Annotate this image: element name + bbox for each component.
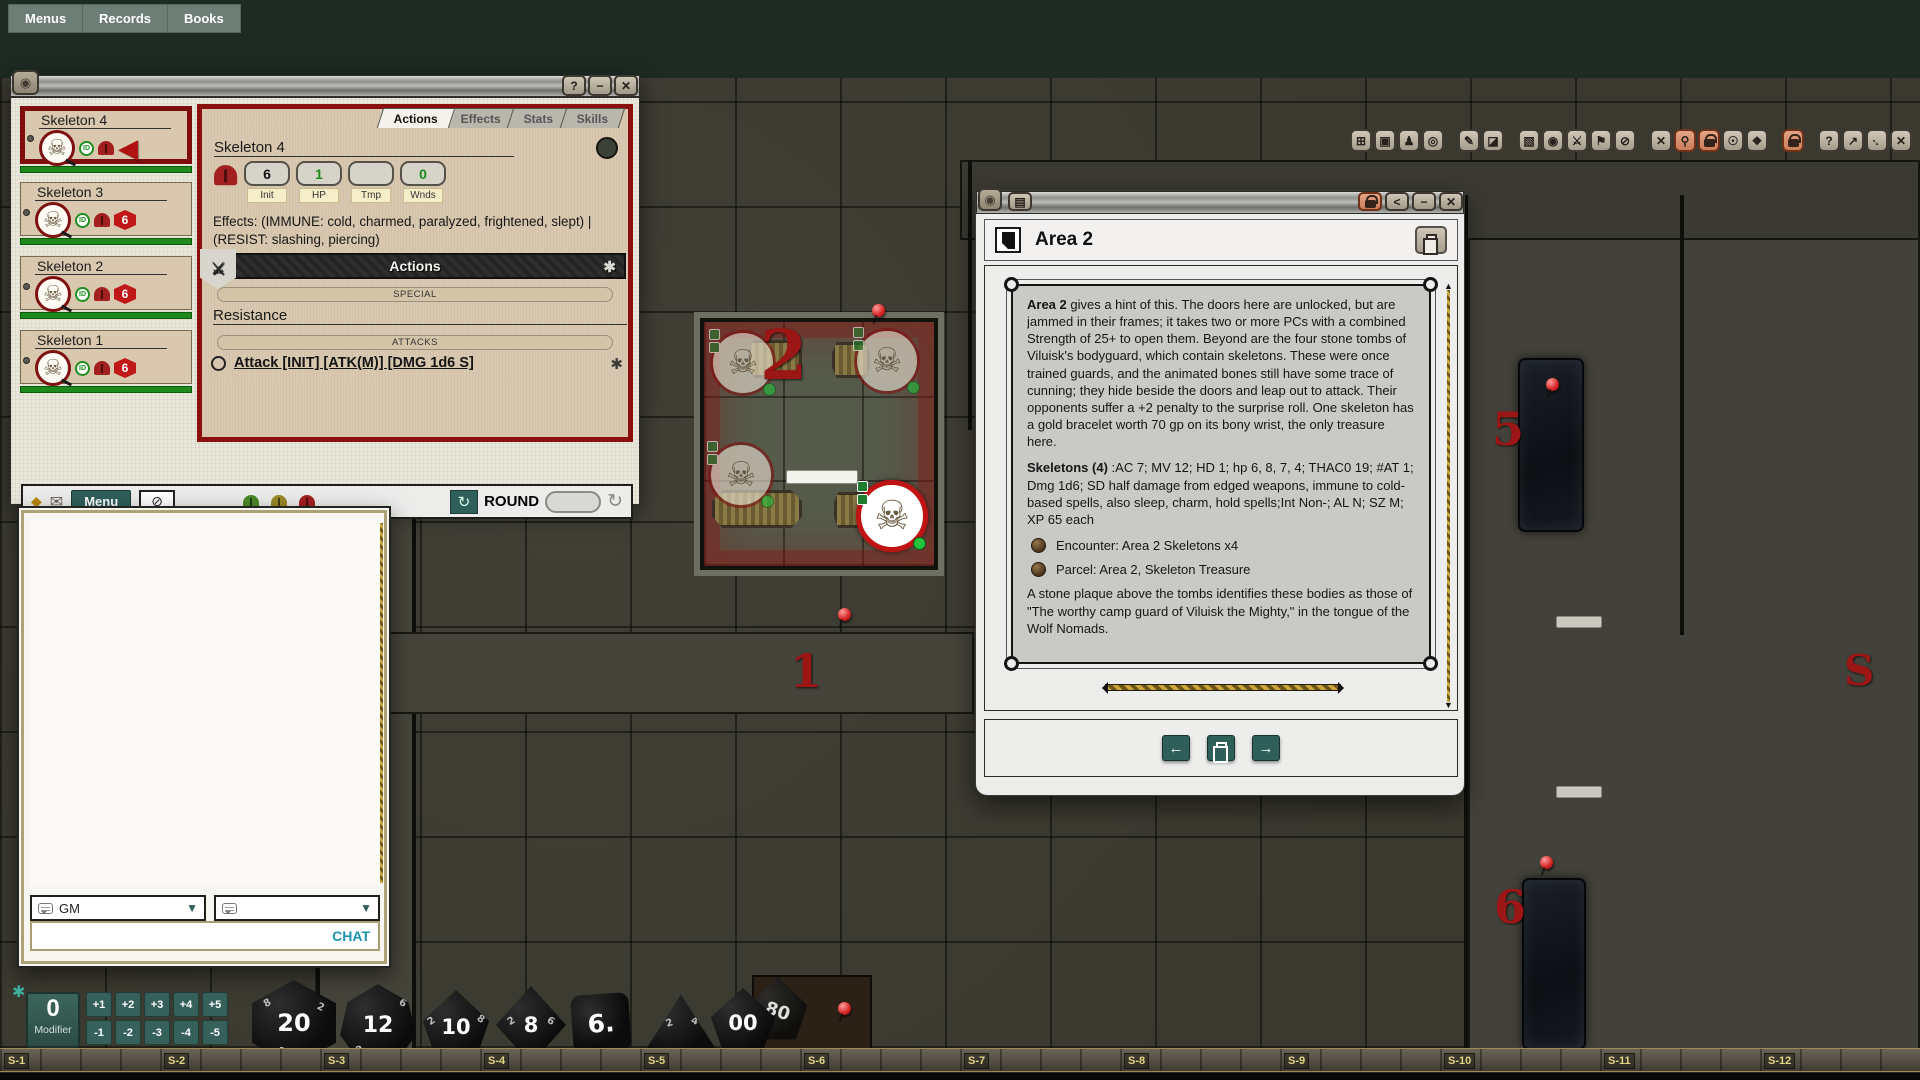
map-number-2: 2 [760, 322, 807, 390]
mod-minus3[interactable]: -3 [144, 1020, 170, 1045]
health-bar [20, 166, 192, 173]
story-header: Area 2 [984, 219, 1458, 261]
tmp-label: Tmp [351, 188, 391, 203]
lock-icon [1788, 139, 1799, 147]
round-input[interactable] [545, 491, 601, 513]
modifier-buttons: +1 +2 +3 +4 +5 -1 -2 -3 -4 -5 [86, 992, 228, 1045]
select-region-icon[interactable]: ▧ [1518, 129, 1540, 152]
token-status-badges [707, 441, 718, 465]
combatant-name[interactable]: Skeleton 4 [39, 112, 171, 129]
pages-icon [1426, 234, 1437, 247]
id-badge: ID [75, 213, 90, 228]
door[interactable] [786, 470, 858, 484]
combatant-row[interactable]: Skeleton 3 ☠ ID 6 [20, 182, 192, 245]
combatant-row[interactable]: Skeleton 1 ☠ ID 6 [20, 330, 192, 393]
ruler-label: S-8 [1124, 1053, 1149, 1069]
menu-button-menus[interactable]: Menus [8, 4, 83, 33]
story-title: Area 2 [1035, 229, 1093, 251]
map-number-6: 6 [1494, 884, 1526, 930]
init-badge: 6 [114, 210, 136, 230]
tab-actions[interactable]: Actions [377, 108, 456, 128]
tmp-value[interactable] [348, 161, 394, 186]
chat-log[interactable] [30, 519, 380, 885]
chat-input[interactable]: CHAT [30, 921, 380, 951]
init-badge: 6 [114, 358, 136, 378]
chat-send-label: CHAT [332, 928, 370, 944]
help-button[interactable]: ? [562, 75, 586, 96]
speech-bubble-icon [38, 903, 53, 914]
token-status-badges [709, 329, 720, 353]
init-value[interactable]: 6 [244, 161, 290, 186]
modifier-box[interactable]: 0 Modifier [26, 992, 80, 1048]
helmet-icon [94, 287, 110, 301]
health-bar [20, 238, 192, 245]
close-map-icon[interactable]: ✕ [1890, 129, 1912, 152]
combatant-token[interactable]: ☠ [39, 130, 75, 166]
mod-minus1[interactable]: -1 [86, 1020, 112, 1045]
help-icon[interactable]: ? [1818, 129, 1840, 152]
close-button[interactable]: ✕ [614, 75, 638, 96]
chevron-down-icon: ▼ [186, 901, 198, 915]
lock-tokens-icon[interactable] [1698, 129, 1720, 152]
bullseye-icon[interactable]: ◉ [1542, 129, 1564, 152]
story-horizontal-scrollbar[interactable] [1105, 684, 1341, 691]
helmet-icon [98, 141, 114, 155]
map-room-2: ☠ ☠ ☠ ☠ [700, 318, 938, 570]
map-pin[interactable] [838, 1002, 851, 1015]
skeleton-token-4-active[interactable]: ☠ [856, 480, 928, 552]
helmet-icon [214, 165, 237, 185]
door[interactable] [1556, 616, 1602, 628]
menu-button-books[interactable]: Books [167, 4, 241, 33]
token-health-dot [761, 495, 774, 508]
ruler-label: S-2 [164, 1053, 189, 1069]
chevron-down-icon: ▼ [360, 901, 372, 915]
mod-minus4[interactable]: -4 [173, 1020, 199, 1045]
modifier-label: Modifier [28, 1024, 78, 1036]
ruler-label: S-10 [1444, 1053, 1475, 1069]
chat-scrollbar[interactable] [380, 523, 383, 883]
combatant-row[interactable]: Skeleton 2 ☠ ID 6 [20, 256, 192, 319]
block-icon[interactable]: ⊘ [1614, 129, 1636, 152]
ruler-label: S-1 [4, 1053, 29, 1069]
round-label: ROUND [484, 493, 539, 510]
ruler-label: S-7 [964, 1053, 989, 1069]
attack-row[interactable]: Attack [INIT] [ATK(M)] [DMG 1d6 S] ✱ [211, 355, 625, 371]
close-icon[interactable]: ✕ [1439, 192, 1463, 211]
faction-dot[interactable] [23, 357, 30, 364]
next-round-button[interactable]: ↻ [450, 490, 478, 514]
skeleton-icon: ☠ [874, 496, 910, 536]
pin-icon[interactable]: ⚲ [1674, 129, 1696, 152]
map-toolbar: ⊞ ▣ ♟ ◎ ✎ ◪ ▧ ◉ ⚔ ⚑ ⊘ ✕ ⚲ ☉ ❖ ? ↗ ↔ ✕ [1350, 129, 1914, 152]
gear-icon[interactable]: ✱ [603, 258, 616, 276]
init-label: Init [247, 188, 287, 203]
bottom-strip [0, 1073, 1920, 1080]
pencil-icon[interactable]: ✎ [1458, 129, 1480, 152]
token-vision-icon[interactable]: ☉ [1722, 129, 1744, 152]
refresh-icon[interactable]: ↻ [607, 490, 623, 513]
record-token-icon [1031, 538, 1046, 553]
attack-link[interactable]: Attack [INIT] [ATK(M)] [DMG 1d6 S] [234, 355, 474, 371]
gear-icon[interactable]: ✱ [610, 355, 623, 373]
helmet-icon [94, 361, 110, 375]
story-window-area-2: ◉ ▤ < − ✕ Area 2 Area 2 gives a hint of … [975, 190, 1465, 796]
stat-boxes: 6Init 1HP Tmp 0Wnds [244, 161, 446, 203]
modifier-value: 0 [28, 994, 78, 1024]
minimize-icon[interactable]: − [1412, 192, 1436, 211]
copy-button[interactable] [1415, 226, 1447, 254]
move-icon[interactable]: ❖ [1746, 129, 1768, 152]
ruler-label: S-4 [484, 1053, 509, 1069]
token-health-dot [907, 381, 920, 394]
health-bar [20, 386, 192, 393]
detail-tabs: Actions Effects Stats Skills [385, 108, 622, 128]
pages-icon [1216, 742, 1227, 755]
flag-icon[interactable]: ⚑ [1590, 129, 1612, 152]
story-text[interactable]: Area 2 gives a hint of this. The doors h… [1027, 296, 1415, 652]
dragon-menu-icon[interactable]: ◉ [978, 188, 1002, 211]
ruler-label: S-12 [1764, 1053, 1795, 1069]
skeleton-token-2[interactable]: ☠ [854, 328, 920, 394]
combatant-token[interactable]: ☠ [35, 276, 71, 312]
ruler-label: S-6 [804, 1053, 829, 1069]
wnds-label: Wnds [403, 188, 443, 203]
mod-plus4[interactable]: +4 [173, 992, 199, 1017]
pages-button[interactable] [1207, 735, 1235, 761]
speech-bubble-icon [222, 903, 237, 914]
combatant-name[interactable]: Skeleton 2 [35, 258, 167, 275]
lock-window-icon[interactable] [1358, 192, 1382, 211]
combatant-name[interactable]: Skeleton 1 [35, 332, 167, 349]
mod-plus3[interactable]: +3 [144, 992, 170, 1017]
map-corridor [318, 632, 974, 714]
minimize-button[interactable]: − [588, 75, 612, 96]
stone-slab-6[interactable] [1522, 878, 1586, 1050]
paragraph: Area 2 gives a hint of this. The doors h… [1027, 296, 1415, 450]
story-nav-bar: ← → [984, 719, 1458, 777]
chat-mode-dropdown[interactable]: ▼ [214, 895, 380, 921]
combatant-list: Skeleton 4 ☠ ID ◀ Skeleton 3 [20, 106, 192, 464]
hp-label: HP [299, 188, 339, 203]
story-book-icon [995, 227, 1021, 253]
person-icon[interactable]: ♟ [1398, 129, 1420, 152]
token-delete-icon[interactable]: ✕ [1650, 129, 1672, 152]
map-scale-ruler: S-1 S-2 S-3 S-4 S-5 S-6 S-7 S-8 S-9 S-10… [0, 1048, 1920, 1072]
chat-identity-value: GM [59, 901, 180, 916]
mod-minus5[interactable]: -5 [202, 1020, 228, 1045]
effects-text: Effects: (IMMUNE: cold, charmed, paralyz… [213, 213, 625, 248]
fit-screen-icon[interactable]: ⊞ [1350, 129, 1372, 152]
paragraph: A stone plaque above the tombs identifie… [1027, 585, 1415, 636]
detail-name[interactable]: Skeleton 4 [214, 139, 514, 157]
combatant-row[interactable]: Skeleton 4 ☠ ID ◀ [20, 106, 192, 173]
skeleton-icon: ☠ [728, 346, 758, 380]
init-badge: 6 [114, 284, 136, 304]
mod-plus5[interactable]: +5 [202, 992, 228, 1017]
record-token-icon [1031, 562, 1046, 577]
map-pin[interactable] [1540, 856, 1553, 869]
wnds-value[interactable]: 0 [400, 161, 446, 186]
map-pin[interactable] [1546, 378, 1559, 391]
map-number-5: 5 [1492, 406, 1524, 452]
map-pin[interactable] [872, 304, 885, 317]
story-body: Area 2 gives a hint of this. The doors h… [984, 265, 1458, 711]
camera-icon[interactable]: ▣ [1374, 129, 1396, 152]
hp-value[interactable]: 1 [296, 161, 342, 186]
combatant-detail-panel: Actions Effects Stats Skills Skeleton 4 … [197, 104, 633, 442]
ruler-label: S-11 [1604, 1053, 1635, 1069]
story-vertical-scrollbar[interactable]: ▲ ▼ [1447, 290, 1450, 702]
resistance-label: Resistance [213, 307, 627, 325]
map-number-1: 1 [790, 648, 822, 694]
attack-radio[interactable] [211, 356, 226, 371]
chat-window: GM ▼ ▼ CHAT [17, 506, 391, 968]
special-button[interactable]: SPECIAL [217, 287, 613, 302]
detail-token[interactable] [596, 137, 618, 159]
story-frame: Area 2 gives a hint of this. The doors h… [1011, 284, 1431, 664]
map-letter-s: S [1844, 650, 1874, 692]
top-menubar: Menus Records Books [0, 0, 1920, 40]
combatant-name[interactable]: Skeleton 3 [35, 184, 167, 201]
lock-map-icon[interactable] [1782, 129, 1804, 152]
combatant-token[interactable]: ☠ [35, 202, 71, 238]
paragraph: Skeletons (4) :AC 7; MV 12; HD 1; hp 6, … [1027, 459, 1415, 528]
settings-gear-icon[interactable]: ✱ [12, 982, 25, 1002]
health-bar [20, 312, 192, 319]
id-badge: ID [75, 361, 90, 376]
eraser-icon[interactable]: ◪ [1482, 129, 1504, 152]
shield-icon: ⚔ [200, 249, 236, 289]
share-icon[interactable]: < [1385, 192, 1409, 211]
crossed-swords-icon[interactable]: ⚔ [1566, 129, 1588, 152]
parcel-link[interactable]: Parcel: Area 2, Skeleton Treasure [1031, 561, 1415, 578]
token-status-badges [857, 481, 868, 505]
chat-identity-dropdown[interactable]: GM ▼ [30, 895, 206, 921]
tab-skills[interactable]: Skills [559, 108, 625, 128]
target-icon[interactable]: ◎ [1422, 129, 1444, 152]
lock-icon [1704, 139, 1715, 147]
skeleton-token-3[interactable]: ☠ [708, 442, 774, 508]
token-health-dot [913, 537, 926, 550]
attacks-button[interactable]: ATTACKS [217, 335, 613, 350]
ruler-label: S-9 [1284, 1053, 1309, 1069]
menu-button-records[interactable]: Records [82, 4, 168, 33]
mod-plus2[interactable]: +2 [115, 992, 141, 1017]
skeleton-icon: ☠ [726, 458, 756, 492]
faction-dot[interactable] [23, 283, 30, 290]
map-pin[interactable] [838, 608, 851, 621]
helmet-icon [94, 213, 110, 227]
actions-header: ⚔ Actions ✱ [204, 253, 626, 279]
id-badge: ID [75, 287, 90, 302]
active-turn-arrow: ◀ [118, 135, 138, 161]
token-status-badges [853, 327, 864, 351]
dragon-menu-icon[interactable]: ◉ [12, 70, 39, 95]
lock-icon [1365, 200, 1376, 208]
combatant-token[interactable]: ☠ [35, 350, 71, 386]
ruler-label: S-5 [644, 1053, 669, 1069]
resize-icon[interactable]: ↔ [1866, 129, 1888, 152]
combat-tracker-window: ◉ ? − ✕ Skeleton 4 ☠ ID ◀ [10, 75, 640, 505]
book-reference-icon[interactable]: ▤ [1008, 192, 1032, 211]
skeleton-icon: ☠ [872, 344, 902, 378]
ruler-label: S-3 [324, 1053, 349, 1069]
mod-minus2[interactable]: -2 [115, 1020, 141, 1045]
next-page-button[interactable]: → [1252, 735, 1280, 761]
encounter-link[interactable]: Encounter: Area 2 Skeletons x4 [1031, 537, 1415, 554]
prev-page-button[interactable]: ← [1162, 735, 1190, 761]
d6-die[interactable]: 6. [570, 992, 632, 1054]
door[interactable] [1556, 786, 1602, 798]
id-badge: ID [79, 141, 94, 156]
shrink-icon[interactable]: ↗ [1842, 129, 1864, 152]
faction-dot[interactable] [23, 209, 30, 216]
tracker-titlebar[interactable] [10, 75, 640, 97]
faction-dot[interactable] [27, 135, 34, 142]
mod-plus1[interactable]: +1 [86, 992, 112, 1017]
